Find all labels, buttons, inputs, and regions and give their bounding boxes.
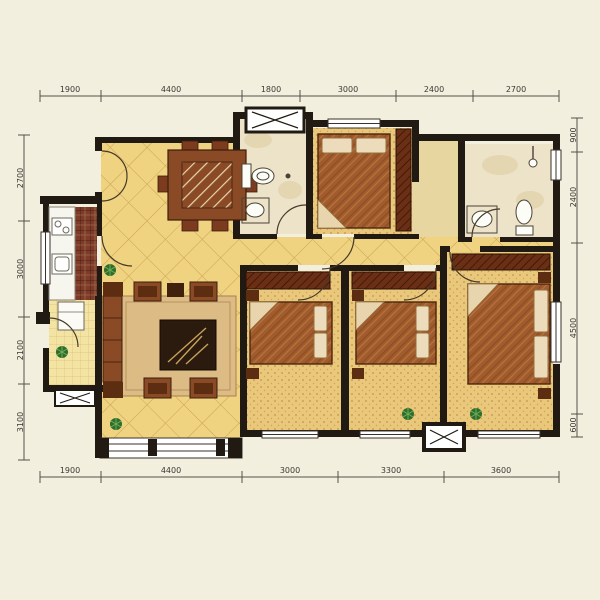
pillow-icon [416, 333, 429, 358]
nightstand-icon [246, 368, 259, 379]
dim-label-right-0: 900 [569, 127, 578, 142]
dim-label-top-4: 2400 [424, 85, 444, 94]
dim-label-bottom-4: 3600 [491, 466, 511, 475]
dim-label-top-3: 3000 [338, 85, 358, 94]
wall [412, 120, 419, 182]
dim-label-left-0: 2700 [16, 168, 25, 188]
stove-icon [52, 218, 72, 235]
dim-label-right-3: 600 [569, 417, 578, 432]
dim-label-top-1: 4400 [161, 85, 181, 94]
plant-icon [470, 408, 482, 420]
nightstand-icon [352, 368, 364, 379]
wall [306, 234, 322, 239]
dim-label-left-3: 3100 [16, 412, 25, 432]
wall [500, 237, 560, 242]
wall [458, 140, 465, 242]
dining-table-top [182, 162, 232, 208]
wall [440, 246, 447, 437]
window-post [228, 438, 242, 458]
window-post [216, 439, 225, 456]
side-table-icon [167, 283, 184, 297]
chair-icon [212, 220, 228, 231]
toilet-icon [516, 200, 532, 224]
wall [412, 134, 559, 141]
marble-blotch [244, 132, 272, 148]
floor-plan-screenshot: 1900 4400 1800 3000 2400 2700 1900 4400 … [0, 0, 600, 600]
dim-label-top-2: 1800 [261, 85, 281, 94]
wall [95, 137, 102, 151]
plant-icon [104, 264, 116, 276]
shower-icon [529, 159, 537, 167]
wall [240, 265, 298, 271]
marble-blotch [482, 155, 518, 175]
dim-label-bottom-0: 1900 [60, 466, 80, 475]
pillow-icon [356, 138, 386, 153]
toilet-icon [252, 168, 274, 184]
marble-blotch [278, 181, 302, 199]
dim-label-right-2: 4500 [569, 318, 578, 338]
wall [553, 364, 560, 437]
nightstand-icon [246, 290, 259, 301]
armchair-cushion [148, 383, 167, 394]
wardrobe-icon [246, 272, 330, 289]
wall [240, 265, 247, 437]
nightstand-icon [538, 272, 551, 283]
dim-label-right-1: 2400 [569, 187, 578, 207]
nightstand-icon [538, 388, 551, 399]
sink-icon [246, 203, 264, 217]
floor-plan-canvas: 1900 4400 1800 3000 2400 2700 1900 4400 … [0, 0, 600, 600]
bedroom-top-furniture [318, 129, 411, 231]
wall [462, 237, 472, 242]
pillow-icon [314, 306, 327, 331]
chair-icon [182, 220, 198, 231]
sofa-corner [103, 282, 123, 296]
pillow-icon [534, 336, 548, 378]
floor-drain-icon [286, 174, 290, 178]
armchair-cushion [194, 383, 213, 394]
wall [95, 192, 102, 204]
wardrobe-icon [396, 129, 411, 231]
pillow-icon [534, 290, 548, 332]
pillow-icon [314, 333, 327, 358]
window-post [148, 439, 157, 456]
wall [354, 234, 419, 239]
chair-icon [158, 176, 169, 192]
toilet-tank [516, 226, 533, 235]
dim-label-left-1: 3000 [16, 259, 25, 279]
wall [97, 266, 102, 300]
sofa-set [103, 282, 236, 398]
sofa-icon [103, 296, 122, 382]
window-post [95, 438, 109, 458]
bedroom2-furniture [352, 272, 436, 379]
wardrobe-icon [352, 272, 436, 289]
pillow-icon [416, 306, 429, 331]
plant-icon [110, 418, 122, 430]
toilet-tank [242, 164, 251, 188]
wall [346, 265, 404, 271]
sofa-corner [103, 382, 123, 398]
dim-label-top-0: 1900 [60, 85, 80, 94]
pillow-icon [322, 138, 352, 153]
plant-icon [56, 346, 68, 358]
wardrobe-icon [452, 254, 550, 270]
armchair-cushion [194, 286, 213, 297]
wall [306, 112, 313, 239]
nightstand-icon [352, 290, 364, 301]
fridge-icon [58, 302, 84, 330]
dim-label-left-2: 2100 [16, 340, 25, 360]
plant-icon [402, 408, 414, 420]
wall [233, 234, 277, 239]
wall [480, 246, 559, 252]
dim-label-bottom-1: 4400 [161, 466, 181, 475]
dim-label-top-5: 2700 [506, 85, 526, 94]
wall [97, 204, 102, 236]
wall [40, 196, 102, 204]
dim-label-bottom-2: 3000 [280, 466, 300, 475]
bedroom1-furniture [246, 272, 332, 379]
dim-label-bottom-3: 3300 [381, 466, 401, 475]
entry-column [36, 312, 50, 324]
wall [95, 296, 102, 444]
wall [341, 265, 349, 437]
armchair-cushion [138, 286, 157, 297]
